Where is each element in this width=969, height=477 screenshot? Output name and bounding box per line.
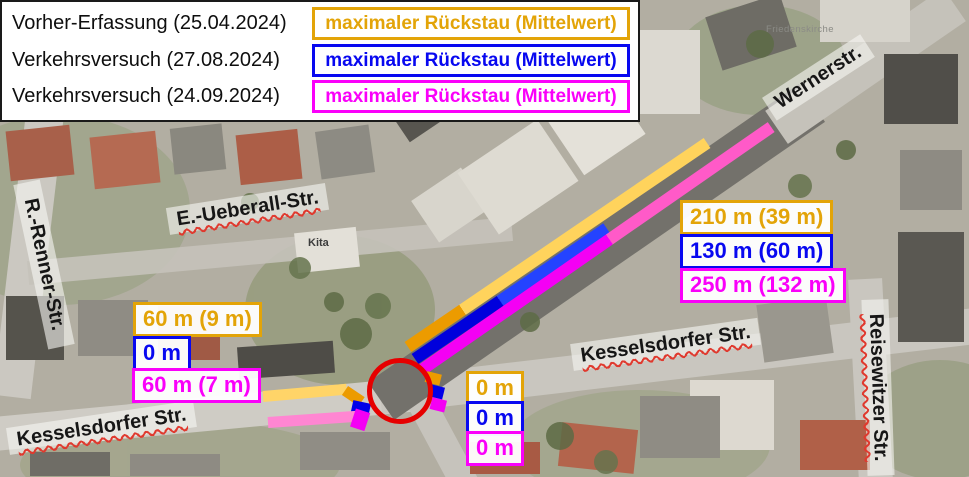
measurement-west-vorher: 60 m (9 m) xyxy=(133,302,262,337)
measurement-south-versuch-sep: 0 m xyxy=(466,431,524,466)
legend-row-versuch-sep: Verkehrsversuch (24.09.2024) maximaler R… xyxy=(12,80,630,113)
aerial-map-figure: Kesselsdorfer Str. Kesselsdorfer Str. E.… xyxy=(0,0,969,477)
measurement-ne-versuch-aug: 130 m (60 m) xyxy=(680,234,833,269)
legend-metric-box-versuch-sep: maximaler Rückstau (Mittelwert) xyxy=(312,80,630,113)
measurement-west-versuch-sep: 60 m (7 m) xyxy=(132,368,261,403)
legend-panel: Vorher-Erfassung (25.04.2024) maximaler … xyxy=(0,0,640,122)
legend-metric-box-versuch-aug: maximaler Rückstau (Mittelwert) xyxy=(312,44,630,77)
legend-scenario-label: Verkehrsversuch (27.08.2024) xyxy=(12,49,312,72)
measurement-ne-versuch-sep: 250 m (132 m) xyxy=(680,268,846,303)
legend-metric-box-vorher: maximaler Rückstau (Mittelwert) xyxy=(312,7,630,40)
legend-row-versuch-aug: Verkehrsversuch (27.08.2024) maximaler R… xyxy=(12,44,630,77)
legend-scenario-label: Verkehrsversuch (24.09.2024) xyxy=(12,85,312,108)
legend-scenario-label: Vorher-Erfassung (25.04.2024) xyxy=(12,12,312,35)
legend-row-vorher: Vorher-Erfassung (25.04.2024) maximaler … xyxy=(12,7,630,40)
measurement-west-versuch-aug: 0 m xyxy=(133,336,191,371)
measurement-ne-vorher: 210 m (39 m) xyxy=(680,200,833,235)
